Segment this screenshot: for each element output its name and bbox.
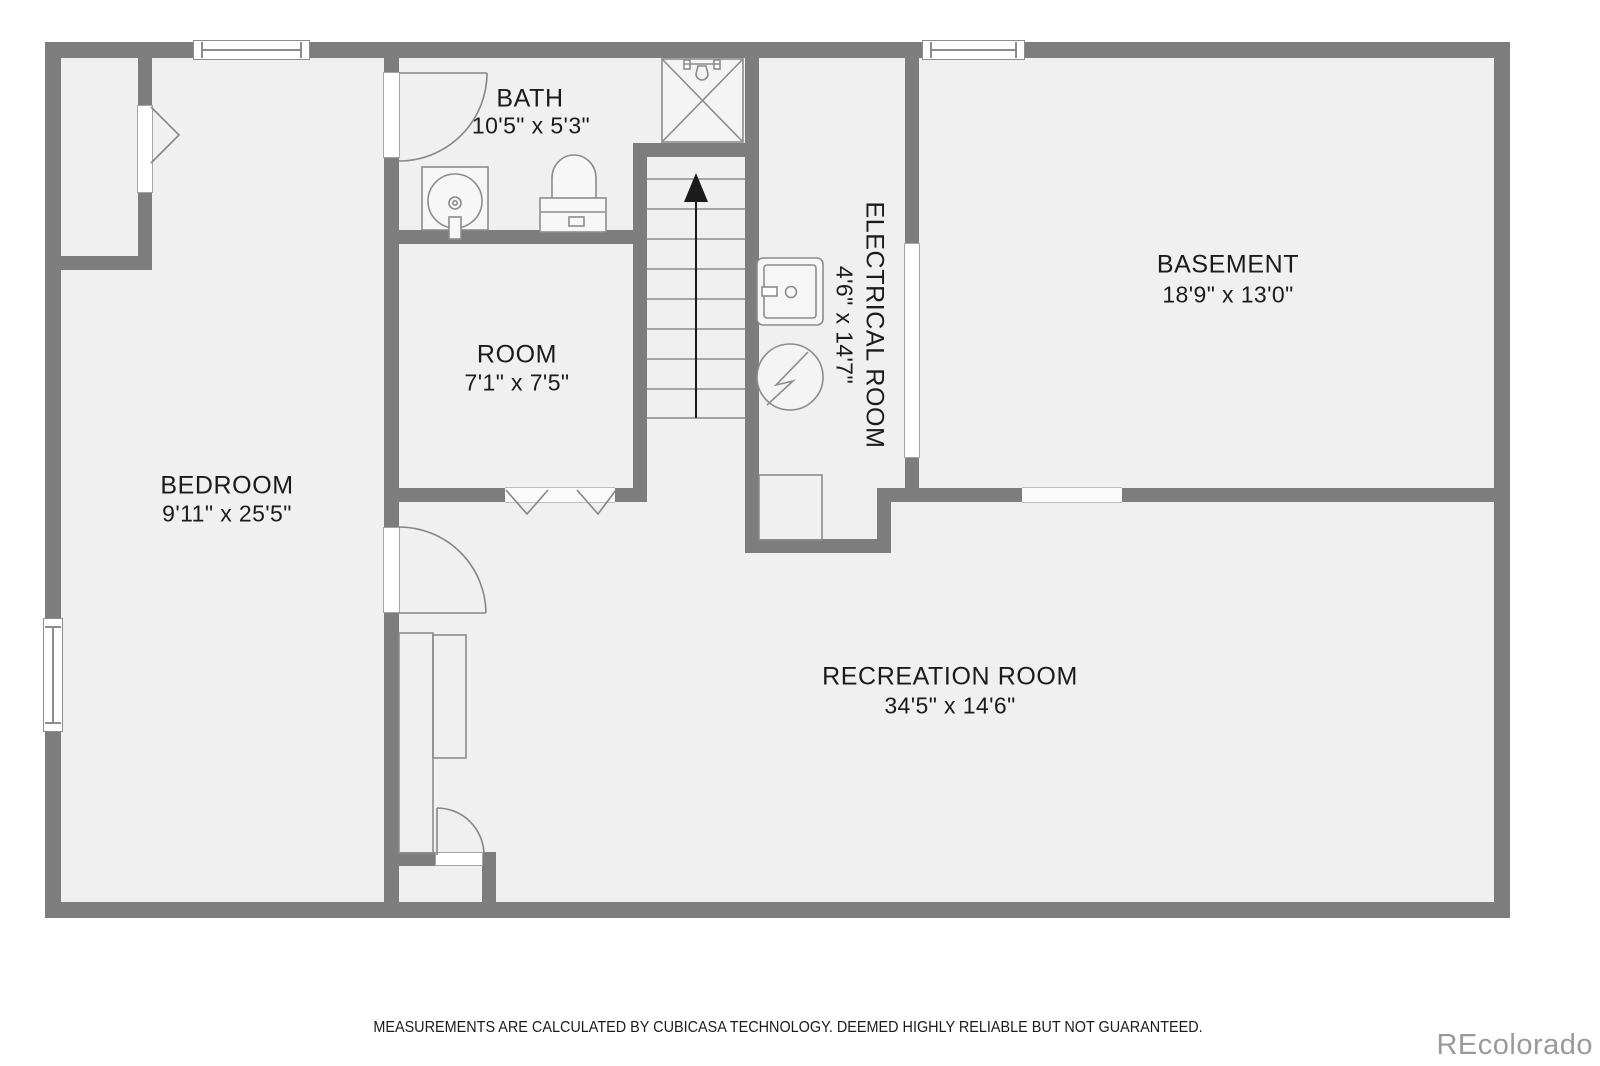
shower-icon	[662, 59, 743, 142]
storage-door-swing-icon	[437, 808, 484, 855]
closet-bifold-door-icon	[151, 107, 179, 163]
stairs	[647, 173, 745, 418]
stairs-arrow-head-icon	[684, 173, 708, 202]
room-label: ROOM	[477, 341, 557, 370]
bath-label: BATH	[496, 85, 563, 114]
plan-symbols	[0, 0, 1600, 1066]
disclaimer-text: MEASUREMENTS ARE CALCULATED BY CUBICASA …	[373, 1019, 1202, 1037]
bedroom-dims: 9'11" x 25'5"	[162, 501, 292, 528]
recreation-room-dims: 34'5" x 14'6"	[884, 693, 1015, 720]
electrical-room-dims: 4'6" x 14'7"	[831, 201, 859, 448]
utility-sink-icon	[757, 258, 823, 325]
toilet-icon	[540, 155, 606, 232]
floor-plan: BEDROOM 9'11" x 25'5" BATH 10'5" x 5'3" …	[0, 0, 1600, 1066]
room-dims: 7'1" x 7'5"	[465, 370, 570, 397]
basement-dims: 18'9" x 13'0"	[1162, 282, 1293, 309]
room-double-door-right-icon	[577, 490, 616, 514]
pedestal-sink-icon	[422, 167, 488, 239]
basement-label: BASEMENT	[1157, 251, 1299, 280]
bedroom-label: BEDROOM	[160, 472, 293, 501]
understair-storage	[759, 475, 822, 540]
electrical-panel-icon	[757, 344, 823, 410]
recreation-room-label: RECREATION ROOM	[822, 663, 1078, 692]
wardrobe	[399, 633, 466, 853]
bedroom-door-swing-icon	[399, 527, 486, 613]
bath-dims: 10'5" x 5'3"	[472, 113, 590, 140]
electrical-room-label: ELECTRICAL ROOM	[859, 201, 890, 448]
recolorado-watermark: REcolorado	[1436, 1029, 1593, 1062]
room-double-door-left-icon	[506, 490, 548, 514]
electrical-room-label-group: ELECTRICAL ROOM 4'6" x 14'7"	[831, 201, 890, 448]
